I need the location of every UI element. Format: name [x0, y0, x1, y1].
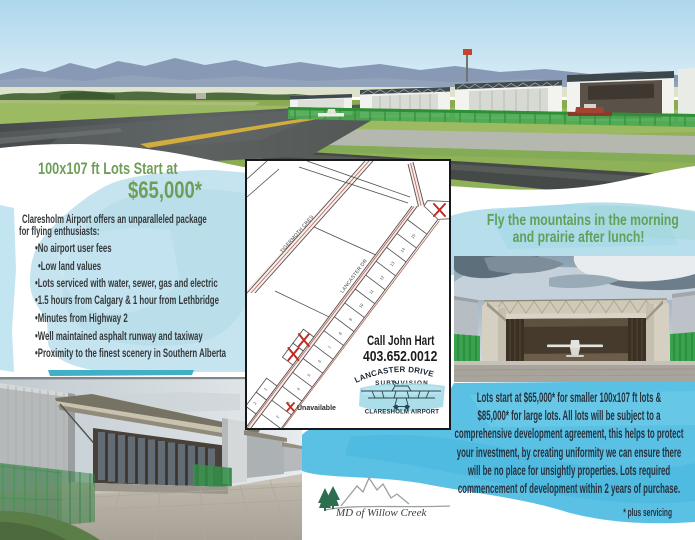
- svg-text:14: 14: [399, 246, 406, 253]
- svg-text:6: 6: [317, 358, 323, 363]
- svg-text:9: 9: [348, 316, 354, 321]
- svg-text:4: 4: [296, 386, 302, 391]
- svg-text:7: 7: [327, 344, 333, 349]
- svg-text:13: 13: [389, 260, 396, 267]
- svg-text:15: 15: [410, 232, 417, 239]
- svg-text:12: 12: [378, 274, 385, 281]
- svg-text:TIGERMOTH CRES: TIGERMOTH CRES: [279, 214, 315, 255]
- svg-text:CLARESHOLM AIRPORT: CLARESHOLM AIRPORT: [365, 410, 440, 416]
- svg-text:2: 2: [275, 414, 281, 419]
- svg-text:8: 8: [337, 330, 343, 335]
- svg-text:5: 5: [306, 372, 312, 377]
- svg-text:Unavailable: Unavailable: [297, 405, 336, 412]
- svg-text:11: 11: [368, 288, 375, 295]
- svg-text:10: 10: [358, 302, 365, 309]
